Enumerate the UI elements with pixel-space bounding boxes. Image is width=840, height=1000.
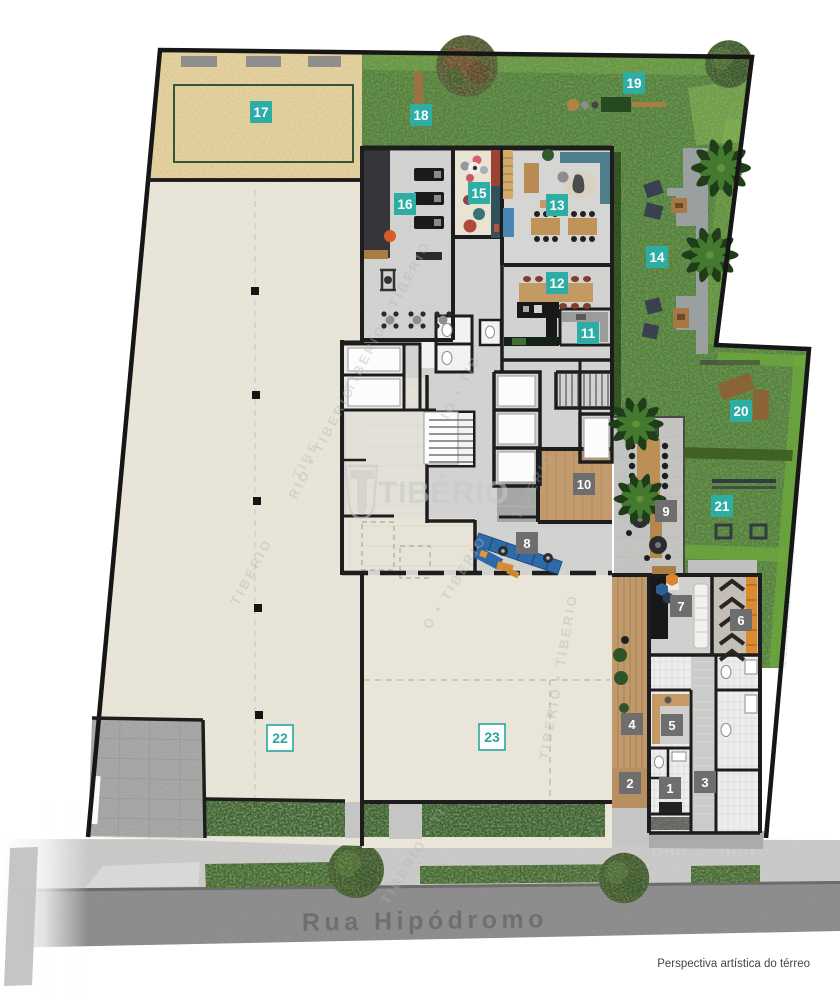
svg-text:10: 10	[577, 477, 591, 492]
svg-text:16: 16	[397, 197, 413, 212]
svg-text:12: 12	[549, 276, 564, 291]
svg-text:TIBÉRIO: TIBÉRIO	[378, 474, 509, 510]
svg-text:Perspectiva artística do térre: Perspectiva artística do térreo	[657, 958, 810, 970]
svg-text:7: 7	[677, 599, 684, 614]
svg-text:8: 8	[523, 536, 530, 551]
svg-text:23: 23	[484, 729, 500, 745]
svg-text:11: 11	[581, 326, 596, 341]
svg-text:14: 14	[649, 250, 665, 265]
svg-text:3: 3	[701, 775, 708, 790]
svg-text:13: 13	[549, 198, 565, 213]
svg-text:20: 20	[733, 404, 748, 419]
svg-text:19: 19	[626, 76, 641, 91]
svg-text:2: 2	[626, 776, 633, 791]
svg-text:Rua Hipódromo: Rua Hipódromo	[302, 905, 548, 936]
svg-text:17: 17	[253, 105, 268, 120]
svg-text:21: 21	[714, 499, 730, 514]
svg-text:1: 1	[666, 781, 673, 796]
svg-text:18: 18	[413, 108, 429, 123]
svg-text:6: 6	[737, 613, 744, 628]
svg-text:9: 9	[662, 504, 669, 519]
svg-text:5: 5	[668, 718, 675, 733]
svg-text:4: 4	[628, 717, 636, 732]
svg-text:22: 22	[272, 730, 288, 746]
svg-text:15: 15	[471, 186, 487, 201]
